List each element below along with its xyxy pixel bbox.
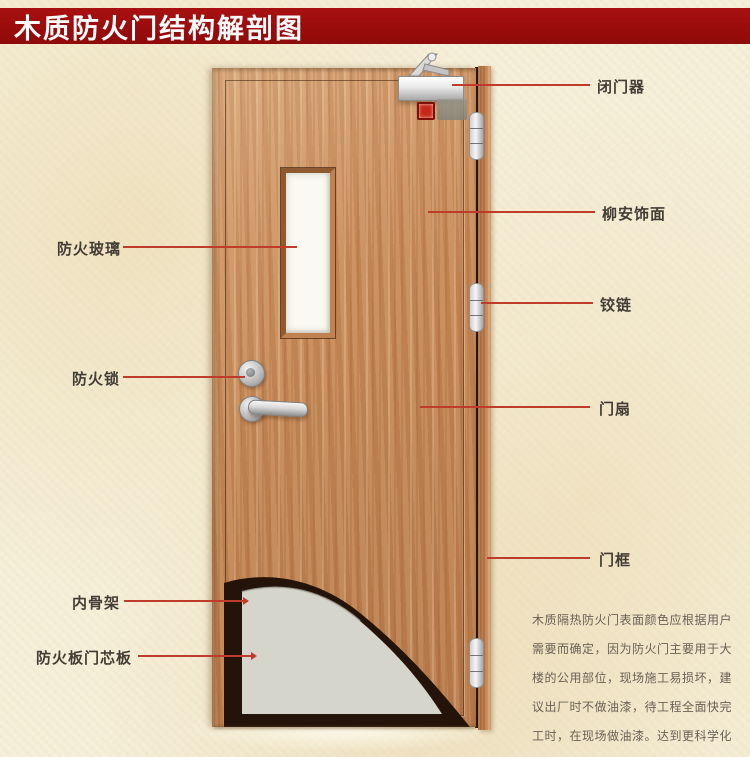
description-line: 需要而确定，因为防火门主要用于大 <box>532 635 732 664</box>
label-fire-lock: 防火锁 <box>72 368 120 389</box>
title-banner: 木质防火门结构解剖图 <box>0 8 750 44</box>
door-leaf <box>212 68 476 727</box>
hinge-middle <box>469 283 484 332</box>
description-line: 议出厂时不做油漆，待工程全面快完 <box>532 693 732 722</box>
annotation-line-lauan-veneer <box>428 211 595 213</box>
annotation-line-fire-lock <box>123 376 245 378</box>
label-inner-skeleton: 内骨架 <box>72 592 120 613</box>
infographic-canvas: 木质防火门结构解剖图 <box>0 0 750 757</box>
door-bottom-shadow <box>214 726 476 729</box>
description-paragraph: 木质隔热防火门表面颜色应根据用户 需要而确定，因为防火门主要用于大 楼的公用部位… <box>532 606 732 757</box>
description-line: 楼的公用部位，现场施工易损坏，建 <box>532 664 732 693</box>
door-frame-strip <box>478 66 491 730</box>
label-door-closer: 闭门器 <box>597 76 645 97</box>
description-line: 工时，在现场做油漆。达到更科学化 <box>532 722 732 751</box>
annotation-line-core-board <box>138 655 252 657</box>
annotation-line-hinge <box>481 302 593 304</box>
annotation-line-door-frame <box>487 557 590 559</box>
description-line: 木质隔热防火门表面颜色应根据用户 <box>532 606 732 635</box>
annotation-line-door-closer <box>452 84 590 86</box>
label-fire-glass: 防火玻璃 <box>57 238 121 259</box>
description-line: 更人性化的服务。 <box>532 751 732 757</box>
hinge-top <box>469 112 484 160</box>
label-door-frame: 门框 <box>599 549 631 570</box>
annotation-line-fire-glass <box>123 246 297 248</box>
label-core-board: 防火板门芯板 <box>36 647 132 668</box>
page-title: 木质防火门结构解剖图 <box>0 7 304 46</box>
label-hinge: 铰链 <box>600 294 632 315</box>
cutaway-section <box>212 68 476 727</box>
hinge-bottom <box>469 638 484 688</box>
label-lauan-veneer: 柳安饰面 <box>602 203 666 224</box>
annotation-line-door-leaf <box>420 406 590 408</box>
label-door-leaf: 门扇 <box>599 398 631 419</box>
annotation-line-inner-skeleton <box>124 600 244 602</box>
